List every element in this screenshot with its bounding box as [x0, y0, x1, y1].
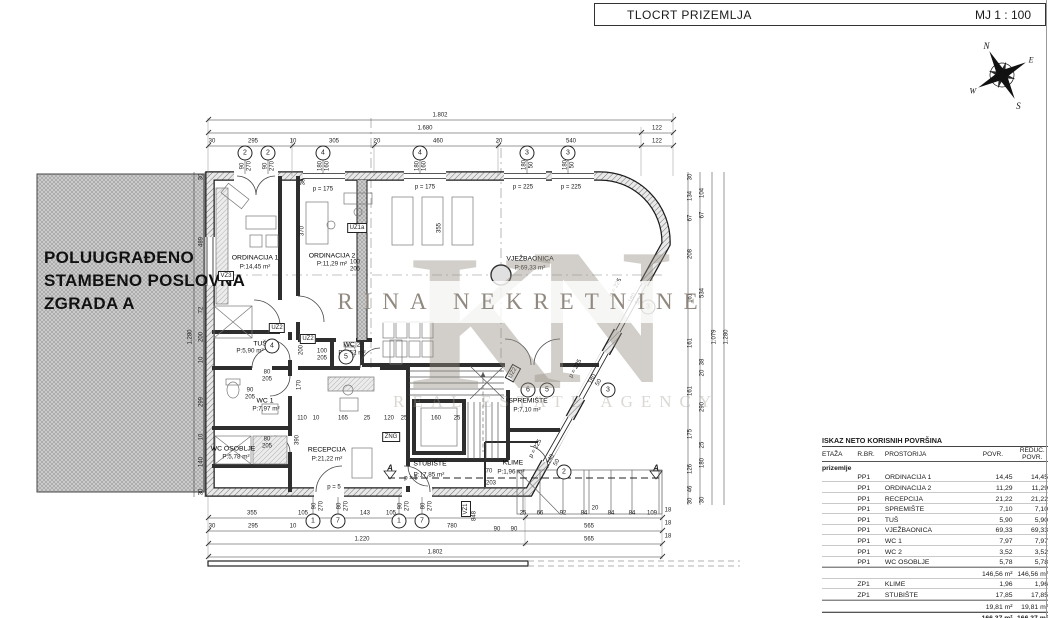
table-row: PP1TUŠ5,905,90	[822, 514, 1048, 525]
table-cell: 69,33	[973, 527, 1016, 534]
table-cell: 21,22	[973, 496, 1016, 503]
table-cell: ZP1	[857, 592, 885, 599]
table-cell: PP1	[857, 474, 885, 481]
table-cell: 19,81 m²	[1017, 604, 1048, 611]
table-group-row: prizemlje	[822, 462, 1048, 472]
table-cell: 1,96	[1017, 581, 1048, 588]
col-header-prostorija: PROSTORIJA	[885, 451, 973, 458]
table-row: 166,37 m²166,37 m²	[822, 612, 1048, 618]
property-line-bar	[208, 561, 740, 566]
table-cell: 7,97	[1017, 538, 1048, 545]
table-cell: 21,22	[1017, 496, 1048, 503]
table-row: 146,56 m²146,56 m²	[822, 567, 1048, 579]
table-row: PP1SPREMIŠTE7,107,10	[822, 504, 1048, 515]
table-row: ZP1STUBIŠTE17,8517,85	[822, 589, 1048, 600]
table-cell: PP1	[857, 559, 885, 566]
table-cell: 146,56 m²	[973, 571, 1016, 578]
floor-plan-sheet: N E S W POLUUGRAĐENO STAMBENO POSLOVNA Z…	[0, 0, 1052, 618]
table-cell: 5,90	[1017, 517, 1048, 524]
table-row: PP1WC 23,523,52	[822, 546, 1048, 557]
table-cell: 5,78	[1017, 559, 1048, 566]
table-cell: 7,10	[973, 506, 1016, 513]
table-cell: 14,45	[1017, 474, 1048, 481]
col-header-povr: POVR.	[973, 451, 1016, 458]
col-header-etaza: ETAŽA	[822, 451, 857, 458]
svg-text:S: S	[1016, 101, 1021, 111]
table-cell: 17,85	[1017, 592, 1048, 599]
table-cell: WC 2	[885, 549, 973, 556]
table-cell: PP1	[857, 527, 885, 534]
table-row: 19,81 m²19,81 m²	[822, 600, 1048, 612]
adjacent-building-line: POLUUGRAĐENO	[44, 246, 245, 269]
table-row: ZP1KLIME1,961,96	[822, 579, 1048, 590]
table-cell: VJEŽBAONICA	[885, 527, 973, 534]
table-row: PP1WC OSOBLJE5,785,78	[822, 557, 1048, 568]
table-cell: 69,33	[1017, 527, 1048, 534]
table-cell: SPREMIŠTE	[885, 506, 973, 513]
table-cell: WC 1	[885, 538, 973, 545]
table-cell: 3,52	[973, 549, 1016, 556]
drawing-scale: MJ 1 : 100	[975, 8, 1045, 22]
table-cell: KLIME	[885, 581, 973, 588]
table-cell: 146,56 m²	[1017, 571, 1048, 578]
svg-text:E: E	[1028, 56, 1034, 65]
table-cell: PP1	[857, 517, 885, 524]
table-cell: WC OSOBLJE	[885, 559, 973, 566]
table-cell: 5,78	[973, 559, 1016, 566]
table-row: PP1WC 17,977,97	[822, 535, 1048, 546]
table-cell: 14,45	[973, 474, 1016, 481]
table-cell: 5,90	[973, 517, 1016, 524]
table-row: PP1ORDINACIJA 211,2911,29	[822, 482, 1048, 493]
adjacent-building-block	[37, 174, 204, 492]
adjacent-building-label: POLUUGRAĐENO STAMBENO POSLOVNA ZGRADA A	[44, 246, 245, 315]
compass-rose-icon: N E S W	[950, 23, 1052, 129]
table-body: PP1ORDINACIJA 114,4514,45PP1ORDINACIJA 2…	[822, 472, 1048, 618]
table-cell: PP1	[857, 506, 885, 513]
table-row: PP1ORDINACIJA 114,4514,45	[822, 472, 1048, 483]
table-cell: TUŠ	[885, 517, 973, 524]
sheet-right-border	[1046, 0, 1047, 618]
table-cell: RECEPCIJA	[885, 496, 973, 503]
table-cell: 19,81 m²	[973, 604, 1016, 611]
table-row: PP1VJEŽBAONICA69,3369,33	[822, 525, 1048, 536]
table-cell: PP1	[857, 549, 885, 556]
table-cell: 17,85	[973, 592, 1016, 599]
table-cell: ORDINACIJA 1	[885, 474, 973, 481]
col-header-reduc: REDUC. POVR.	[1017, 447, 1048, 461]
table-cell: 7,10	[1017, 506, 1048, 513]
table-cell: 11,29	[1017, 485, 1048, 492]
table-row: PP1RECEPCIJA21,2221,22	[822, 493, 1048, 504]
drawing-title: TLOCRT PRIZEMLJA	[595, 8, 752, 22]
col-header-rbr: R.BR.	[857, 451, 885, 458]
table-cell: PP1	[857, 485, 885, 492]
adjacent-building-line: ZGRADA A	[44, 292, 245, 315]
table-cell: PP1	[857, 538, 885, 545]
table-header-row: ETAŽA R.BR. PROSTORIJA POVR. REDUC. POVR…	[822, 447, 1048, 462]
table-title: ISKAZ NETO KORISNIH POVRŠINA	[822, 436, 1048, 447]
table-cell: STUBIŠTE	[885, 592, 973, 599]
svg-text:W: W	[970, 86, 978, 95]
table-cell: ZP1	[857, 581, 885, 588]
svg-text:N: N	[982, 41, 990, 51]
table-cell: 3,52	[1017, 549, 1048, 556]
title-block: TLOCRT PRIZEMLJA MJ 1 : 100	[594, 3, 1046, 26]
table-cell: 7,97	[973, 538, 1016, 545]
area-summary-table: ISKAZ NETO KORISNIH POVRŠINA ETAŽA R.BR.…	[822, 436, 1048, 618]
table-cell: ORDINACIJA 2	[885, 485, 973, 492]
table-cell: 11,29	[973, 485, 1016, 492]
adjacent-building-line: STAMBENO POSLOVNA	[44, 269, 245, 292]
table-cell: 1,96	[973, 581, 1016, 588]
group-label: prizemlje	[822, 465, 858, 472]
table-cell: PP1	[857, 496, 885, 503]
